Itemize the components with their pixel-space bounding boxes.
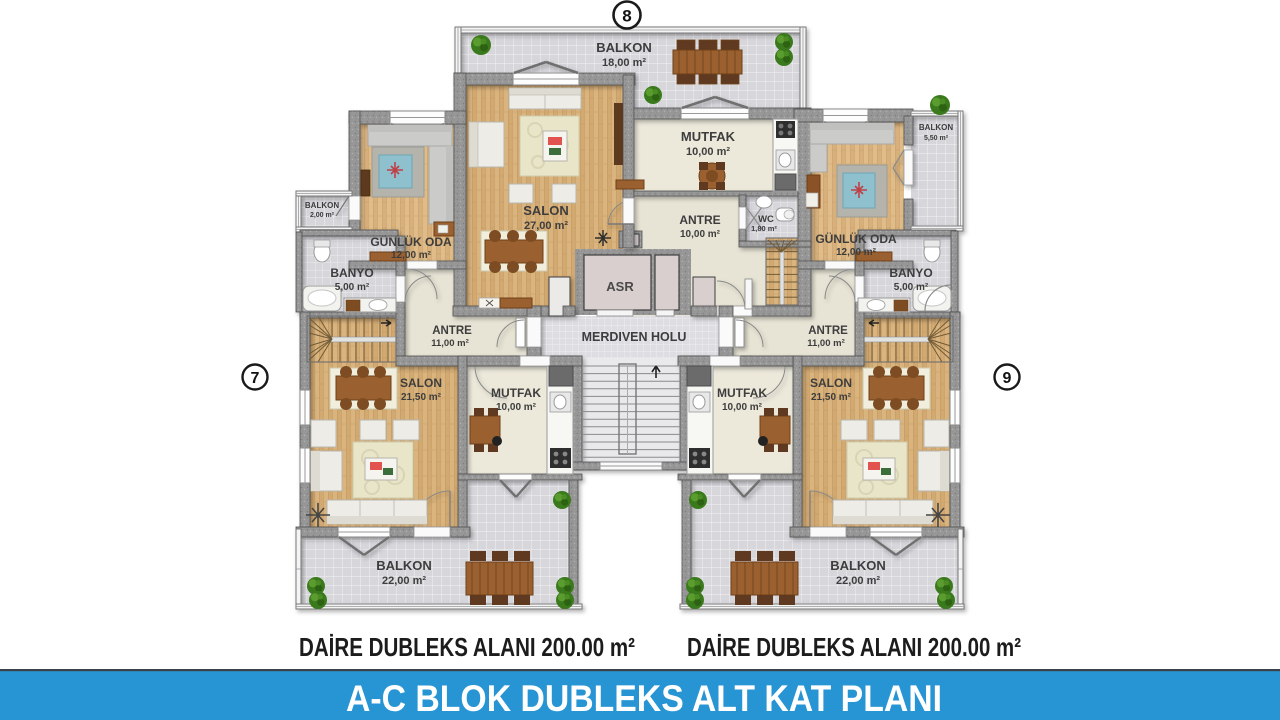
svg-text:27,00 m²: 27,00 m² — [524, 220, 568, 232]
svg-text:21,50 m²: 21,50 m² — [401, 392, 442, 403]
svg-text:ASR: ASR — [606, 279, 634, 294]
svg-text:5,00 m²: 5,00 m² — [335, 282, 370, 293]
svg-text:BALKON: BALKON — [830, 558, 886, 573]
svg-text:SALON: SALON — [523, 203, 569, 218]
svg-text:A-C BLOK DUBLEKS ALT KAT PLANI: A-C BLOK DUBLEKS ALT KAT PLANI — [346, 678, 942, 719]
svg-text:10,00 m²: 10,00 m² — [686, 146, 730, 158]
svg-text:5,50 m²: 5,50 m² — [924, 135, 949, 142]
svg-text:10,00 m²: 10,00 m² — [680, 229, 721, 240]
svg-text:ANTRE: ANTRE — [808, 325, 848, 337]
svg-text:MUTFAK: MUTFAK — [717, 386, 767, 400]
svg-text:ANTRE: ANTRE — [432, 325, 472, 337]
svg-text:5,00 m²: 5,00 m² — [894, 282, 929, 293]
svg-text:DAİRE DUBLEKS ALANI 200.00 m²: DAİRE DUBLEKS ALANI 200.00 m² — [299, 632, 635, 662]
svg-text:2,00 m²: 2,00 m² — [310, 212, 335, 219]
svg-text:BALKON: BALKON — [376, 558, 432, 573]
svg-text:1,80 m²: 1,80 m² — [751, 224, 777, 233]
svg-text:BANYO: BANYO — [330, 266, 373, 280]
svg-text:21,50 m²: 21,50 m² — [811, 392, 852, 403]
svg-text:12,00 m²: 12,00 m² — [391, 250, 432, 261]
svg-text:SALON: SALON — [400, 376, 442, 390]
svg-text:BALKON: BALKON — [919, 123, 953, 132]
svg-text:SALON: SALON — [810, 376, 852, 390]
svg-text:MUTFAK: MUTFAK — [681, 129, 736, 144]
svg-text:11,00 m²: 11,00 m² — [807, 338, 845, 349]
svg-text:MUTFAK: MUTFAK — [491, 386, 541, 400]
svg-text:DAİRE DUBLEKS ALANI 200.00 m²: DAİRE DUBLEKS ALANI 200.00 m² — [687, 632, 1021, 662]
svg-text:10,00 m²: 10,00 m² — [496, 402, 537, 413]
svg-text:GÜNLÜK ODA: GÜNLÜK ODA — [370, 234, 452, 249]
svg-text:10,00 m²: 10,00 m² — [722, 402, 763, 413]
svg-text:8: 8 — [622, 7, 631, 26]
svg-text:BALKON: BALKON — [305, 201, 339, 210]
svg-text:22,00 m²: 22,00 m² — [382, 575, 426, 587]
svg-text:22,00 m²: 22,00 m² — [836, 575, 880, 587]
svg-text:ANTRE: ANTRE — [679, 213, 720, 227]
svg-text:18,00 m²: 18,00 m² — [602, 57, 646, 69]
svg-text:BANYO: BANYO — [889, 266, 932, 280]
svg-text:GÜNLÜK ODA: GÜNLÜK ODA — [815, 231, 897, 246]
svg-text:7: 7 — [251, 370, 260, 387]
svg-text:9: 9 — [1003, 370, 1012, 387]
svg-text:BALKON: BALKON — [596, 40, 652, 55]
svg-text:11,00 m²: 11,00 m² — [431, 338, 469, 349]
svg-text:MERDIVEN HOLU: MERDIVEN HOLU — [582, 330, 687, 344]
svg-text:12,00 m²: 12,00 m² — [836, 247, 877, 258]
